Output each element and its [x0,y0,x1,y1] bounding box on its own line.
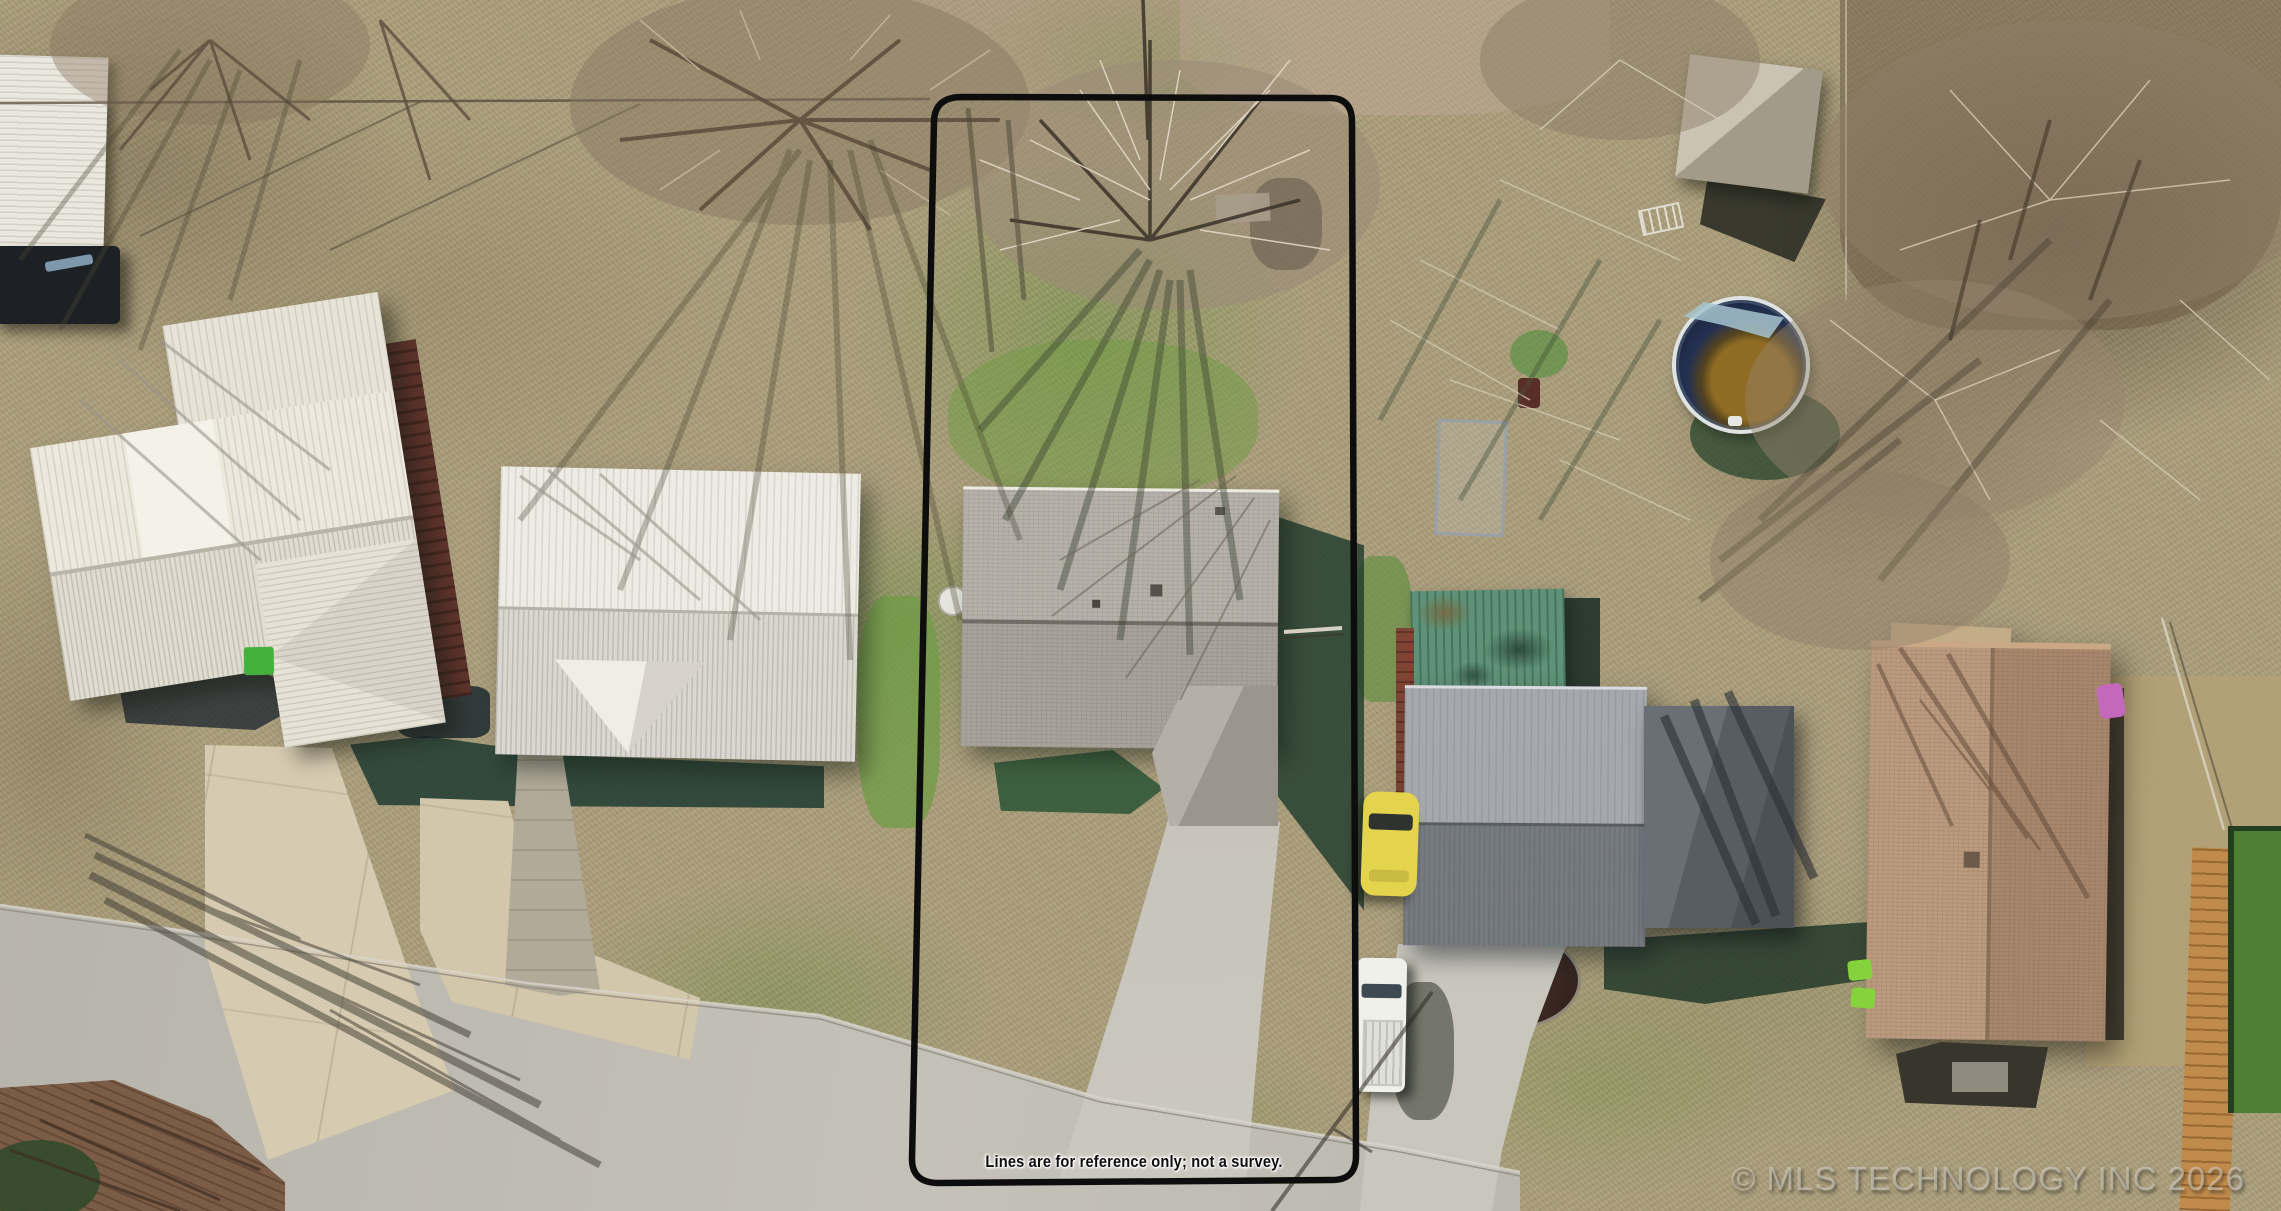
brush-branches-bottom-left [10,1100,260,1211]
tree-shadow-white-roofs [80,340,760,620]
tree-and-line-overlay [0,0,2281,1211]
tree-shadow-right-wing [1664,470,2010,924]
tree-shadow-street [85,835,600,1165]
aerial-photo: Lines are for reference only; not a surv… [0,0,2281,1211]
mls-watermark: © MLS TECHNOLOGY INC 2026 [1731,1160,2245,1198]
stick-object [1284,628,1344,638]
tree-shadow-far-right-roof [1878,648,2088,898]
disclaimer-label: Lines are for reference only; not a surv… [985,1152,1282,1172]
tree-top-left [20,0,470,350]
